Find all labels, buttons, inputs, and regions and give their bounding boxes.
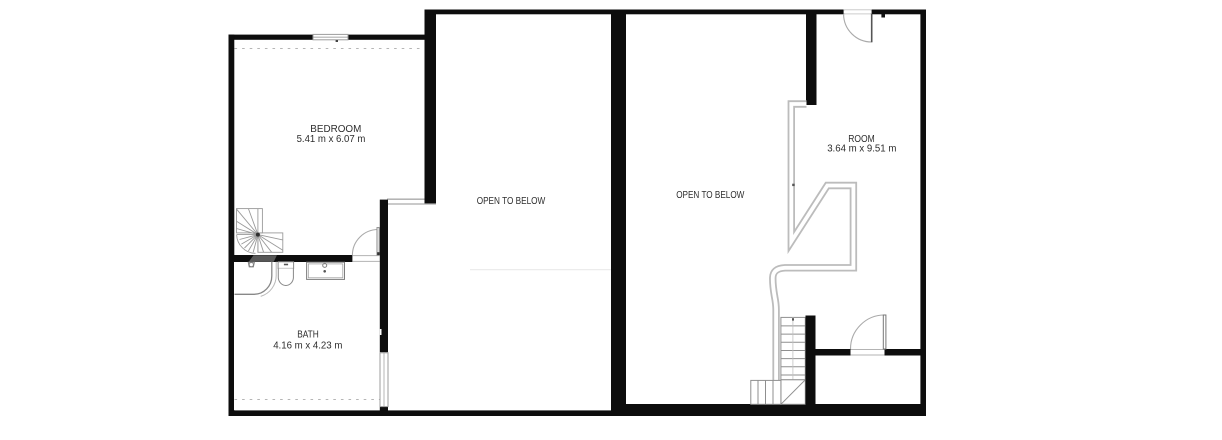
svg-text:3.64 m x 9.51 m: 3.64 m x 9.51 m — [827, 144, 896, 155]
svg-text:OPEN TO BELOW: OPEN TO BELOW — [477, 196, 546, 207]
svg-text:OPEN TO BELOW: OPEN TO BELOW — [676, 190, 745, 201]
svg-text:5.41 m x 6.07 m: 5.41 m x 6.07 m — [297, 134, 366, 145]
svg-text:4.16 m x 4.23 m: 4.16 m x 4.23 m — [273, 341, 342, 352]
svg-text:BATH: BATH — [297, 330, 319, 341]
